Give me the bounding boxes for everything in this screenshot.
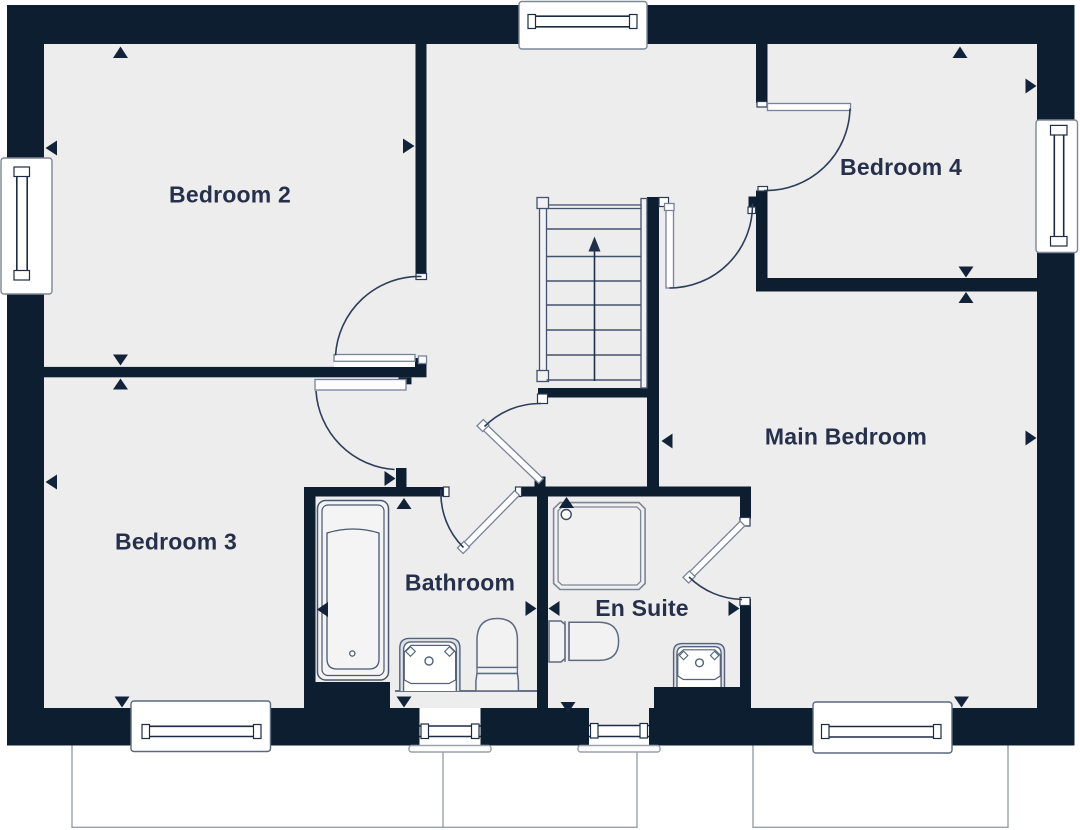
svg-text:Main Bedroom: Main Bedroom: [765, 424, 927, 450]
svg-text:En Suite: En Suite: [595, 595, 689, 621]
svg-text:Bedroom 4: Bedroom 4: [840, 154, 962, 180]
svg-text:Bathroom: Bathroom: [405, 570, 515, 596]
svg-text:Bedroom 3: Bedroom 3: [115, 529, 237, 555]
svg-text:Bedroom 2: Bedroom 2: [169, 182, 291, 208]
